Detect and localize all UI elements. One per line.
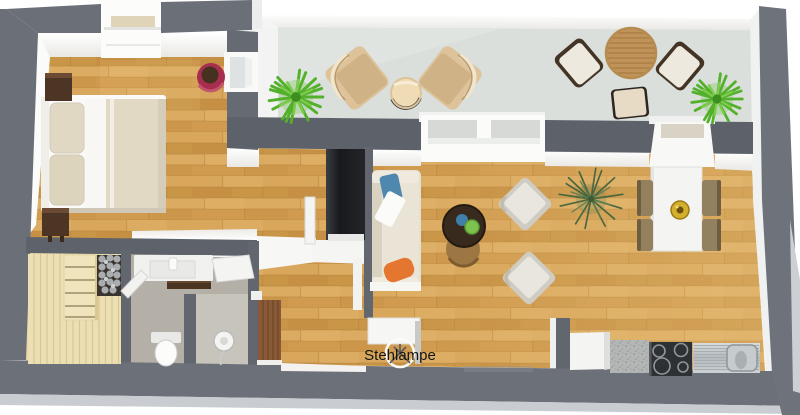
svg-text:Stehlampe: Stehlampe [364, 347, 436, 364]
